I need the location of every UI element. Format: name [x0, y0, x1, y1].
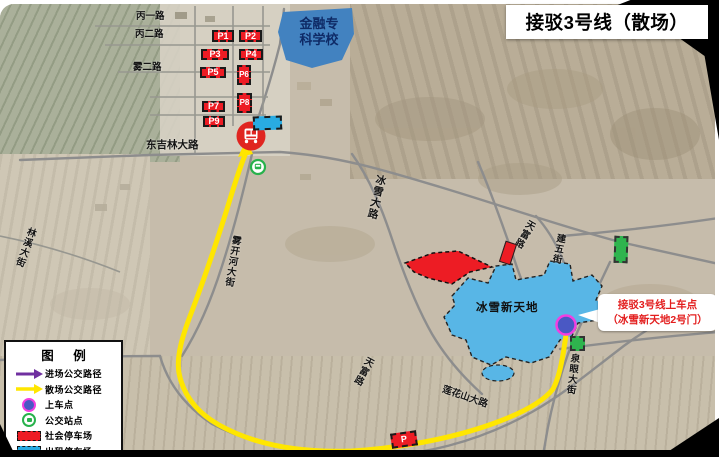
parking-box-p8: P8	[237, 93, 252, 113]
legend-title: 图 例	[6, 345, 121, 364]
road-label: 丙二路	[135, 30, 164, 40]
legend: 图 例 进场公交路径 散场公交路径 上车点 公交站点	[4, 340, 123, 451]
bus-stop-icon	[251, 160, 265, 174]
yellow-arrow-icon	[13, 384, 45, 394]
legend-row-enter-route: 进场公交路径	[6, 366, 121, 382]
bus-stop-legend-icon	[13, 413, 45, 427]
road-grid	[0, 6, 270, 272]
red-dashed-box-icon	[13, 431, 45, 441]
boarding-point-legend-icon	[13, 398, 45, 412]
purple-arrow-icon	[13, 369, 45, 379]
legend-row-boarding-point: 上车点	[6, 397, 121, 413]
cyan-dashed-box-icon	[13, 446, 45, 451]
title-box: 接驳3号线（散场）	[506, 5, 708, 39]
venue-label: 冰雪新天地	[476, 299, 539, 315]
public-parking-area	[405, 251, 492, 284]
legend-row-public-parking: 社会停车场	[6, 428, 121, 444]
school-label: 金融专 科学校	[286, 16, 352, 49]
taxi-parking-box	[253, 115, 282, 130]
parking-box-p6: P6	[237, 65, 251, 85]
parking-box-p4: P4	[239, 49, 263, 60]
parking-box-p5: P5	[200, 67, 226, 78]
green-lot-east	[614, 236, 629, 263]
page-title: 接驳3号线（散场）	[526, 9, 689, 35]
legend-row-exit-route: 散场公交路径	[6, 382, 121, 398]
legend-row-bus-stop: 公交站点	[6, 413, 121, 429]
road-label: 东吉林大路	[146, 140, 199, 151]
parking-box-p3: P3	[201, 49, 229, 60]
parking-box-p7: P7	[202, 101, 225, 112]
slide-edge-black-bottom	[0, 450, 719, 457]
boarding-point-icon	[557, 316, 576, 335]
road-label: 雾二路	[133, 63, 162, 73]
parking-box-p2: P2	[239, 30, 262, 42]
slide: 丙一路 丙二路 雾二路 东吉林大路 冰雪大路 天富路 建五街 天富路 莲花山大路…	[0, 0, 719, 457]
legend-row-taxi-parking: 出租停车场	[6, 444, 121, 452]
parking-box-p9: P9	[203, 116, 225, 127]
road-label: 丙一路	[136, 12, 165, 22]
callout-pointer	[578, 309, 600, 323]
boarding-callout: 接驳3号线上车点 （冰雪新天地2号门）	[598, 294, 715, 331]
parking-box-p1: P1	[212, 30, 234, 42]
green-lot-gate	[570, 336, 585, 351]
map-canvas: 丙一路 丙二路 雾二路 东吉林大路 冰雪大路 天富路 建五街 天富路 莲花山大路…	[0, 4, 715, 451]
